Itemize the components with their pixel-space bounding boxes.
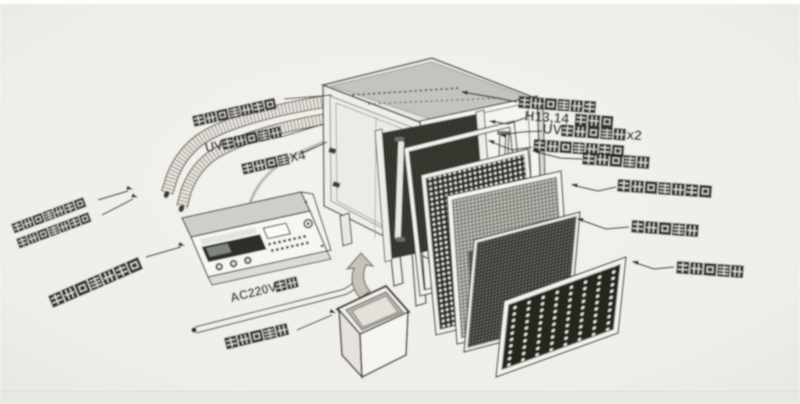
svg-text:UV: UV xyxy=(542,121,563,137)
svg-text:x2: x2 xyxy=(626,127,643,143)
